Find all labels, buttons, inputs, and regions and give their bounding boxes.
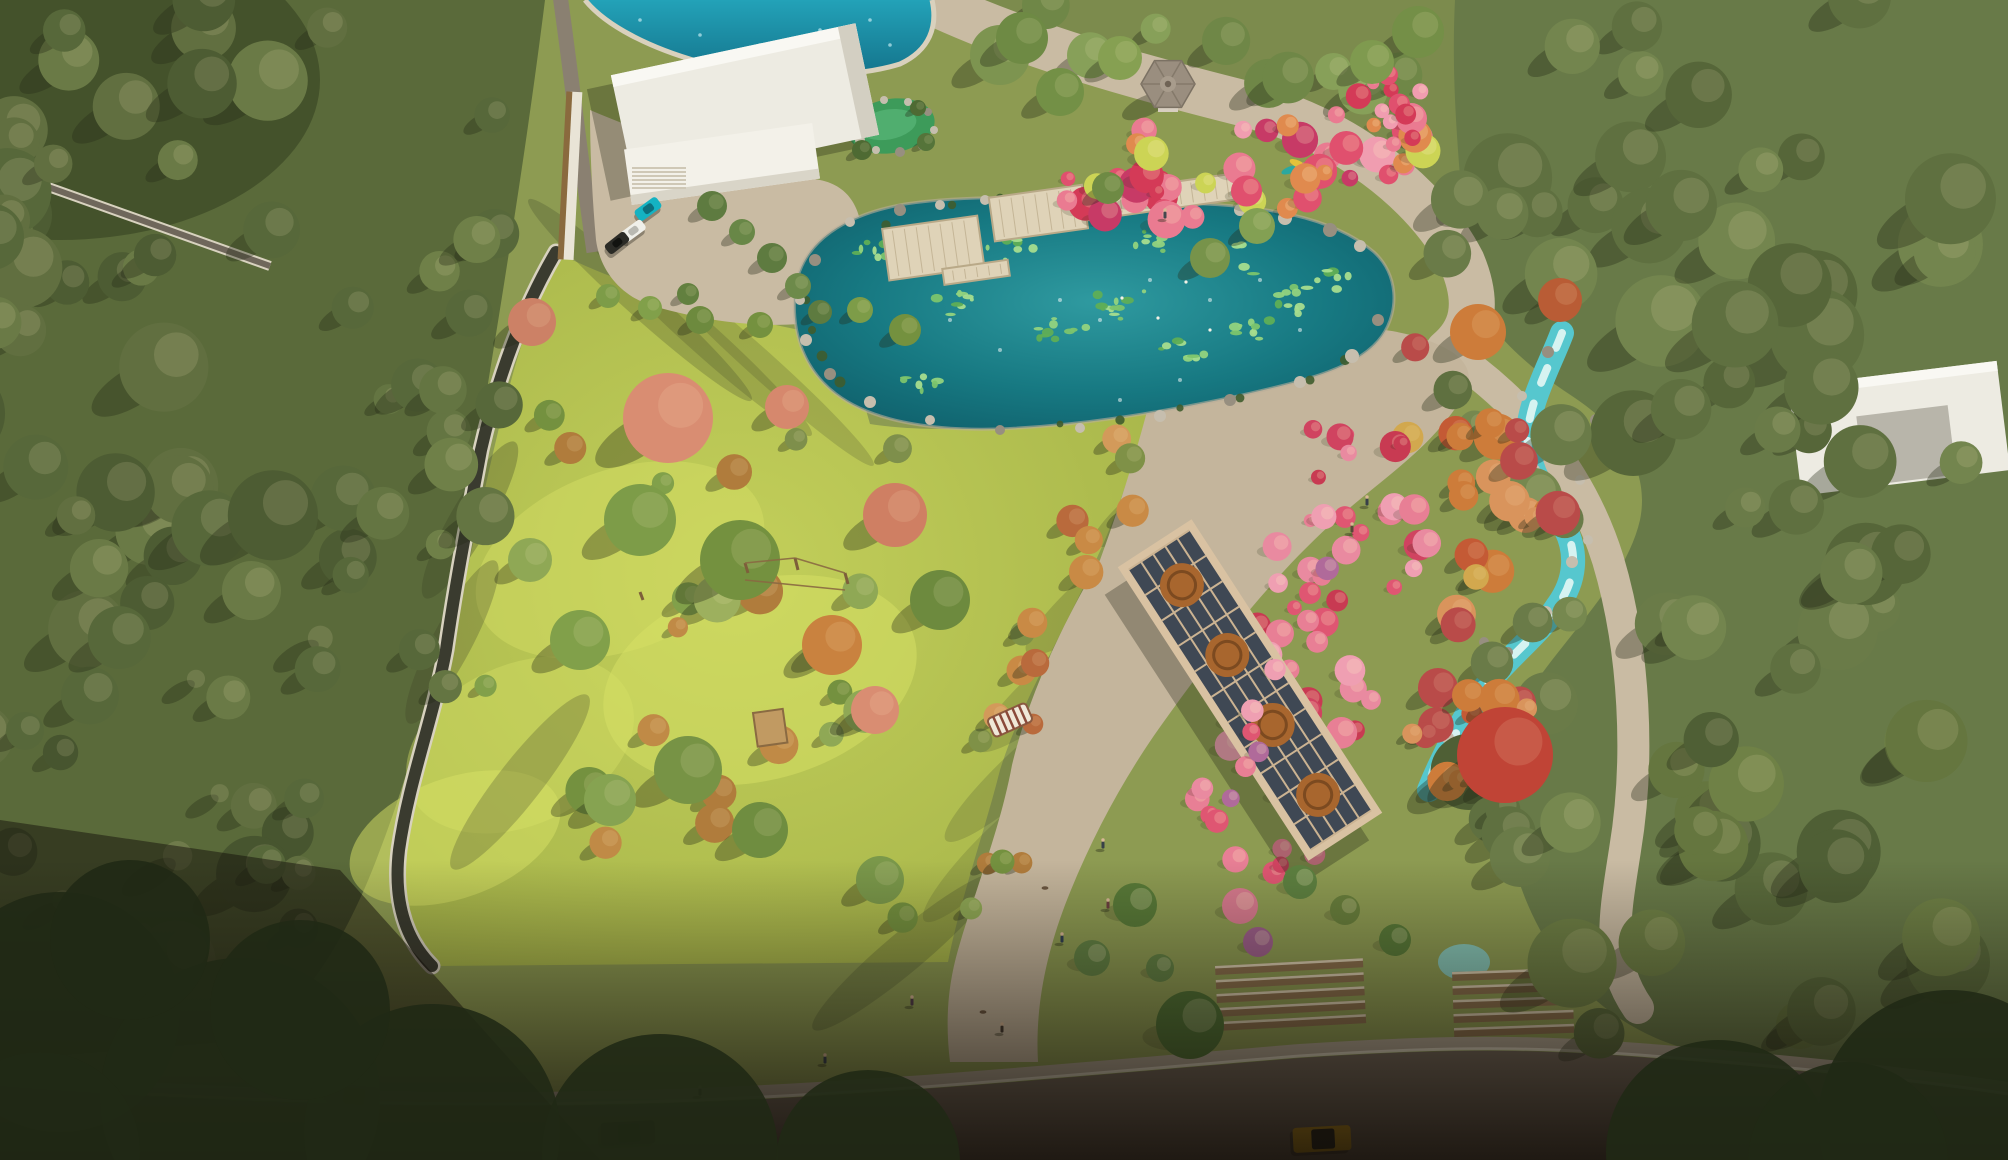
rock xyxy=(1345,349,1359,363)
canopy-highlight xyxy=(119,80,153,114)
rock xyxy=(1542,346,1554,358)
rock xyxy=(864,396,876,408)
duck xyxy=(1208,328,1211,331)
canopy-highlight xyxy=(769,246,784,261)
canopy-highlight xyxy=(1940,163,1985,208)
person-head xyxy=(1365,495,1368,498)
canopy-highlight xyxy=(323,12,343,32)
canopy-highlight xyxy=(1347,447,1355,455)
lily-pad xyxy=(1187,354,1199,358)
canopy-highlight xyxy=(1423,725,1436,738)
canopy-highlight xyxy=(605,287,617,299)
canopy-highlight xyxy=(1693,812,1717,836)
person-shadow xyxy=(1360,506,1369,509)
lily-pad xyxy=(1160,249,1166,253)
canopy-highlight xyxy=(1651,285,1697,331)
canopy-highlight xyxy=(1343,135,1360,152)
canopy-highlight xyxy=(709,194,724,209)
rock xyxy=(845,217,855,227)
canopy-highlight xyxy=(1302,167,1317,182)
canopy-highlight xyxy=(681,743,715,777)
canopy-highlight xyxy=(1104,176,1120,192)
canopy-highlight xyxy=(1468,542,1485,559)
canopy-highlight xyxy=(1487,646,1508,667)
canopy-highlight xyxy=(1317,471,1324,478)
canopy-highlight xyxy=(901,318,917,334)
lily-pad xyxy=(1281,289,1291,296)
canopy-highlight xyxy=(1917,709,1958,750)
person-shadow xyxy=(1096,849,1105,852)
lily-pad xyxy=(864,240,871,245)
canopy-highlight xyxy=(464,295,487,318)
pond-ripple xyxy=(1298,328,1302,332)
canopy-highlight xyxy=(1631,7,1656,32)
canopy-highlight xyxy=(1741,492,1761,512)
canopy-highlight xyxy=(21,716,40,735)
canopy-highlight xyxy=(187,670,205,688)
rock xyxy=(1517,391,1527,401)
canopy-highlight xyxy=(1400,438,1408,446)
canopy-highlight xyxy=(1498,143,1542,187)
canopy-highlight xyxy=(245,567,275,597)
lily-pad xyxy=(1249,329,1257,337)
pond-ripple xyxy=(1258,278,1262,282)
canopy-highlight xyxy=(1410,726,1420,736)
canopy-highlight xyxy=(494,387,518,411)
canopy-highlight xyxy=(1206,242,1226,262)
canopy-highlight xyxy=(1236,156,1252,172)
rock xyxy=(880,96,888,104)
canopy-highlight xyxy=(933,577,963,607)
rock xyxy=(824,368,836,380)
lily-pad xyxy=(874,253,881,261)
canopy-highlight xyxy=(632,492,668,528)
rock xyxy=(800,334,812,346)
canopy-highlight xyxy=(1086,529,1100,543)
pond-ripple xyxy=(1118,398,1122,402)
canopy-highlight xyxy=(313,651,336,674)
rock xyxy=(894,204,906,216)
canopy-highlight xyxy=(817,303,829,315)
lily-pad xyxy=(1334,274,1342,281)
canopy-highlight xyxy=(1434,672,1454,692)
canopy-highlight xyxy=(1394,57,1417,80)
canopy-highlight xyxy=(1029,611,1044,626)
canopy-highlight xyxy=(658,383,703,428)
canopy-highlight xyxy=(1497,193,1523,219)
canopy-highlight xyxy=(223,680,245,702)
canopy-highlight xyxy=(1113,428,1127,442)
lily-pad xyxy=(1114,297,1119,305)
pond-ripple xyxy=(1208,298,1212,302)
lily-pad xyxy=(986,245,990,251)
canopy-highlight xyxy=(1221,22,1245,46)
lily-pad xyxy=(1152,241,1165,248)
canopy-highlight xyxy=(1335,592,1346,603)
canopy-highlight xyxy=(525,543,547,565)
canopy-highlight xyxy=(754,808,782,836)
rock xyxy=(1372,314,1384,326)
canopy-highlight xyxy=(1505,485,1525,505)
canopy-highlight xyxy=(438,371,462,395)
lily-pad xyxy=(1109,313,1120,316)
canopy-highlight xyxy=(1323,166,1331,174)
canopy-highlight xyxy=(483,677,494,688)
lily-pad xyxy=(951,302,963,307)
pool-ripple xyxy=(868,18,872,22)
canopy-highlight xyxy=(1894,531,1924,561)
canopy-highlight xyxy=(488,101,506,119)
lily-pad xyxy=(872,246,876,255)
canopy-highlight xyxy=(1532,192,1557,217)
lily-pad xyxy=(1284,303,1293,308)
canopy-highlight xyxy=(978,731,990,743)
lily-pad xyxy=(1255,337,1263,341)
lily-pad xyxy=(1013,246,1022,253)
canopy-highlight xyxy=(1636,56,1659,79)
lily-pad xyxy=(859,245,864,254)
canopy-highlight xyxy=(1566,25,1594,53)
rock xyxy=(1323,223,1337,237)
canopy-highlight xyxy=(1540,679,1571,710)
canopy-highlight xyxy=(173,144,193,164)
canopy-highlight xyxy=(1229,791,1238,800)
canopy-highlight xyxy=(710,808,730,828)
lily-pad xyxy=(1301,286,1314,290)
canopy-highlight xyxy=(1465,683,1481,699)
canopy-highlight xyxy=(1256,744,1266,754)
canopy-highlight xyxy=(782,390,804,412)
lily-pad xyxy=(1331,285,1342,293)
pool-ripple xyxy=(638,18,642,22)
lily-pad xyxy=(1042,328,1054,337)
rock xyxy=(1294,376,1306,388)
canopy-highlight xyxy=(1554,411,1585,442)
canopy-highlight xyxy=(1359,526,1368,535)
canopy-highlight xyxy=(1705,718,1733,746)
canopy-highlight xyxy=(1772,412,1795,435)
person-shadow xyxy=(1345,533,1354,536)
reed-clump xyxy=(1057,421,1064,428)
person-head xyxy=(1163,208,1166,211)
person xyxy=(1351,526,1354,533)
pavilion-finial xyxy=(1165,81,1171,87)
rock xyxy=(925,415,935,425)
canopy-highlight xyxy=(9,123,34,148)
lily-pad xyxy=(1028,244,1037,253)
lily-pad xyxy=(970,298,974,302)
canopy-highlight xyxy=(794,430,805,441)
lily-pad xyxy=(1230,331,1242,336)
canopy-highlight xyxy=(1311,422,1320,431)
canopy-highlight xyxy=(154,332,199,377)
canopy-highlight xyxy=(62,265,84,287)
canopy-highlight xyxy=(1487,412,1502,427)
canopy-highlight xyxy=(1253,212,1271,230)
canopy-highlight xyxy=(1273,661,1284,672)
canopy-highlight xyxy=(1566,601,1583,618)
lily-pad xyxy=(1264,316,1275,325)
pond-ripple xyxy=(998,348,1002,352)
canopy-highlight xyxy=(1343,539,1357,553)
canopy-highlight xyxy=(1325,559,1337,571)
duck xyxy=(1156,316,1159,319)
lily-pad xyxy=(931,294,943,303)
reed-clump xyxy=(1236,394,1245,403)
lily-pad xyxy=(1051,317,1057,320)
canopy-highlight xyxy=(1335,108,1344,117)
canopy-highlight xyxy=(1780,253,1822,295)
person xyxy=(1366,499,1369,506)
pond-ripple xyxy=(948,318,952,322)
lily-pad xyxy=(1294,310,1302,317)
canopy-highlight xyxy=(1372,119,1379,126)
canopy-highlight xyxy=(1488,554,1510,576)
canopy-highlight xyxy=(730,458,748,476)
canopy-highlight xyxy=(1082,559,1099,576)
canopy-highlight xyxy=(348,291,369,312)
canopy-highlight xyxy=(1293,602,1300,609)
canopy-highlight xyxy=(1277,623,1291,637)
canopy-highlight xyxy=(546,403,561,418)
canopy-highlight xyxy=(1442,235,1466,259)
lily-pad xyxy=(1247,272,1260,275)
canopy-highlight xyxy=(1790,485,1818,513)
canopy-highlight xyxy=(857,300,870,313)
canopy-highlight xyxy=(249,788,272,811)
canopy-highlight xyxy=(1687,602,1719,634)
canopy-highlight xyxy=(347,561,365,579)
canopy-highlight xyxy=(1473,567,1486,580)
canopy-highlight xyxy=(1956,446,1977,467)
canopy-highlight xyxy=(1065,192,1075,202)
canopy-highlight xyxy=(1249,725,1258,734)
canopy-highlight xyxy=(1472,310,1500,338)
canopy-highlight xyxy=(415,634,436,655)
canopy-highlight xyxy=(1412,12,1438,38)
canopy-highlight xyxy=(1282,57,1308,83)
canopy-highlight xyxy=(1674,386,1704,416)
lily-pad xyxy=(1292,289,1301,297)
lily-pad xyxy=(1093,290,1103,299)
lily-pad xyxy=(1200,350,1209,358)
pond-ripple xyxy=(1148,278,1152,282)
rock xyxy=(1224,394,1236,406)
lily-pad xyxy=(1142,289,1146,293)
canopy-highlight xyxy=(1411,498,1426,513)
canopy-highlight xyxy=(1066,173,1073,180)
canopy-highlight xyxy=(1152,17,1167,32)
canopy-highlight xyxy=(1813,358,1850,395)
canopy-highlight xyxy=(1738,755,1776,793)
canopy-highlight xyxy=(837,682,850,695)
rock xyxy=(995,425,1005,435)
lily-pad xyxy=(1109,305,1119,310)
person xyxy=(1102,842,1105,849)
canopy-highlight xyxy=(860,142,870,152)
canopy-highlight xyxy=(1338,721,1354,737)
canopy-highlight xyxy=(1200,780,1211,791)
canopy-highlight xyxy=(107,462,146,501)
canopy-highlight xyxy=(442,674,459,691)
canopy-highlight xyxy=(1243,179,1259,195)
canopy-highlight xyxy=(697,309,711,323)
canopy-highlight xyxy=(194,57,229,92)
canopy-highlight xyxy=(1276,575,1286,585)
canopy-highlight xyxy=(1756,152,1778,174)
lily-pad xyxy=(915,380,922,389)
canopy-highlight xyxy=(1412,336,1426,350)
canopy-highlight xyxy=(93,545,122,574)
canopy-highlight xyxy=(1454,177,1483,206)
canopy-highlight xyxy=(1369,692,1379,702)
pond-ripple xyxy=(1178,378,1182,382)
canopy-highlight xyxy=(72,500,91,519)
lily-pad xyxy=(900,376,912,379)
canopy-highlight xyxy=(1454,611,1472,629)
canopy-highlight xyxy=(1127,447,1142,462)
lily-pad xyxy=(1345,272,1352,280)
rock xyxy=(809,254,821,266)
canopy-highlight xyxy=(1691,69,1724,102)
canopy-highlight xyxy=(795,276,808,289)
canopy-highlight xyxy=(1190,208,1202,220)
canopy-highlight xyxy=(1348,172,1356,180)
person-head xyxy=(1101,838,1104,841)
canopy-highlight xyxy=(567,435,583,451)
canopy-highlight xyxy=(1155,186,1162,193)
pond-ripple xyxy=(1058,298,1062,302)
canopy-highlight xyxy=(1449,375,1468,394)
canopy-highlight xyxy=(1308,585,1319,596)
canopy-highlight xyxy=(1553,496,1575,518)
canopy-highlight xyxy=(924,135,933,144)
canopy-highlight xyxy=(1852,433,1888,469)
canopy-highlight xyxy=(1243,758,1253,768)
lily-pad xyxy=(1314,277,1321,283)
canopy-highlight xyxy=(49,149,68,168)
canopy-highlight xyxy=(1726,290,1769,333)
canopy-highlight xyxy=(263,480,308,525)
canopy-highlight xyxy=(825,622,855,652)
pool-ripple xyxy=(698,33,702,37)
canopy-highlight xyxy=(1306,612,1317,623)
pond-ripple xyxy=(1098,318,1102,322)
canopy-highlight xyxy=(1515,446,1534,465)
pool-ripple xyxy=(888,43,892,47)
canopy-highlight xyxy=(57,739,75,757)
canopy-highlight xyxy=(1214,812,1226,824)
canopy-highlight xyxy=(1728,211,1766,249)
canopy-highlight xyxy=(1315,633,1326,644)
lily-pad xyxy=(1238,324,1242,327)
canopy-highlight xyxy=(856,577,874,595)
canopy-highlight xyxy=(1424,532,1438,546)
dark-canopy xyxy=(50,860,210,1020)
canopy-highlight xyxy=(1564,799,1594,829)
rock xyxy=(930,126,938,134)
canopy-highlight xyxy=(1495,683,1516,704)
lily-pad xyxy=(945,313,955,316)
canopy-highlight xyxy=(1356,86,1369,99)
lily-pad xyxy=(932,381,938,389)
canopy-highlight xyxy=(1790,649,1815,674)
reed-clump xyxy=(1115,415,1124,424)
canopy-highlight xyxy=(1055,73,1079,97)
canopy-highlight xyxy=(259,49,299,89)
render-viewport xyxy=(0,0,2008,1160)
rock xyxy=(872,146,880,154)
canopy-highlight xyxy=(527,303,551,327)
reed-clump xyxy=(1176,404,1183,411)
lily-pad xyxy=(1251,323,1260,329)
lily-pad xyxy=(1034,327,1044,330)
canopy-highlight xyxy=(377,493,403,519)
lily-pad xyxy=(1095,302,1108,309)
reed-clump xyxy=(948,201,956,209)
reed-clump xyxy=(808,326,816,334)
canopy-highlight xyxy=(1337,426,1351,440)
canopy-highlight xyxy=(265,208,293,236)
canopy-highlight xyxy=(1673,178,1709,214)
canopy-highlight xyxy=(739,222,752,235)
person-shadow xyxy=(1158,219,1167,222)
canopy-highlight xyxy=(870,691,894,715)
lily-pad xyxy=(1141,239,1150,245)
canopy-highlight xyxy=(1321,507,1334,520)
canopy-highlight xyxy=(1494,718,1542,766)
canopy-highlight xyxy=(1525,701,1535,711)
rock xyxy=(1354,240,1366,252)
canopy-highlight xyxy=(661,475,672,486)
canopy-highlight xyxy=(1148,140,1165,157)
canopy-highlight xyxy=(60,14,81,35)
canopy-highlight xyxy=(573,617,603,647)
lily-pad xyxy=(1275,300,1283,309)
rock xyxy=(1154,410,1166,422)
lily-pad xyxy=(1133,242,1139,250)
canopy-highlight xyxy=(150,239,171,260)
canopy-highlight xyxy=(1141,120,1154,133)
rock xyxy=(935,200,945,210)
canopy-highlight xyxy=(1342,509,1353,520)
lily-pad xyxy=(1082,324,1091,331)
duck xyxy=(1120,296,1123,299)
canopy-highlight xyxy=(1844,549,1875,580)
canopy-highlight xyxy=(1250,702,1261,713)
canopy-highlight xyxy=(888,490,920,522)
canopy-highlight xyxy=(650,718,666,734)
canopy-highlight xyxy=(1392,138,1400,146)
dark-canopy xyxy=(210,920,390,1100)
canopy-highlight xyxy=(1623,129,1658,164)
reed-clump xyxy=(835,377,846,388)
lily-pad xyxy=(920,373,927,380)
park-aerial-render xyxy=(0,0,2008,1160)
canopy-highlight xyxy=(916,102,924,110)
canopy-highlight xyxy=(211,784,229,802)
lily-pad xyxy=(1172,337,1184,344)
canopy-highlight xyxy=(472,221,496,245)
lily-pad xyxy=(1051,336,1059,343)
canopy-highlight xyxy=(1380,105,1387,112)
canopy-highlight xyxy=(84,673,113,702)
canopy-highlight xyxy=(757,315,770,328)
lily-pad xyxy=(1049,320,1058,329)
canopy-highlight xyxy=(1241,123,1250,132)
canopy-highlight xyxy=(602,830,618,846)
canopy-highlight xyxy=(1347,659,1362,674)
